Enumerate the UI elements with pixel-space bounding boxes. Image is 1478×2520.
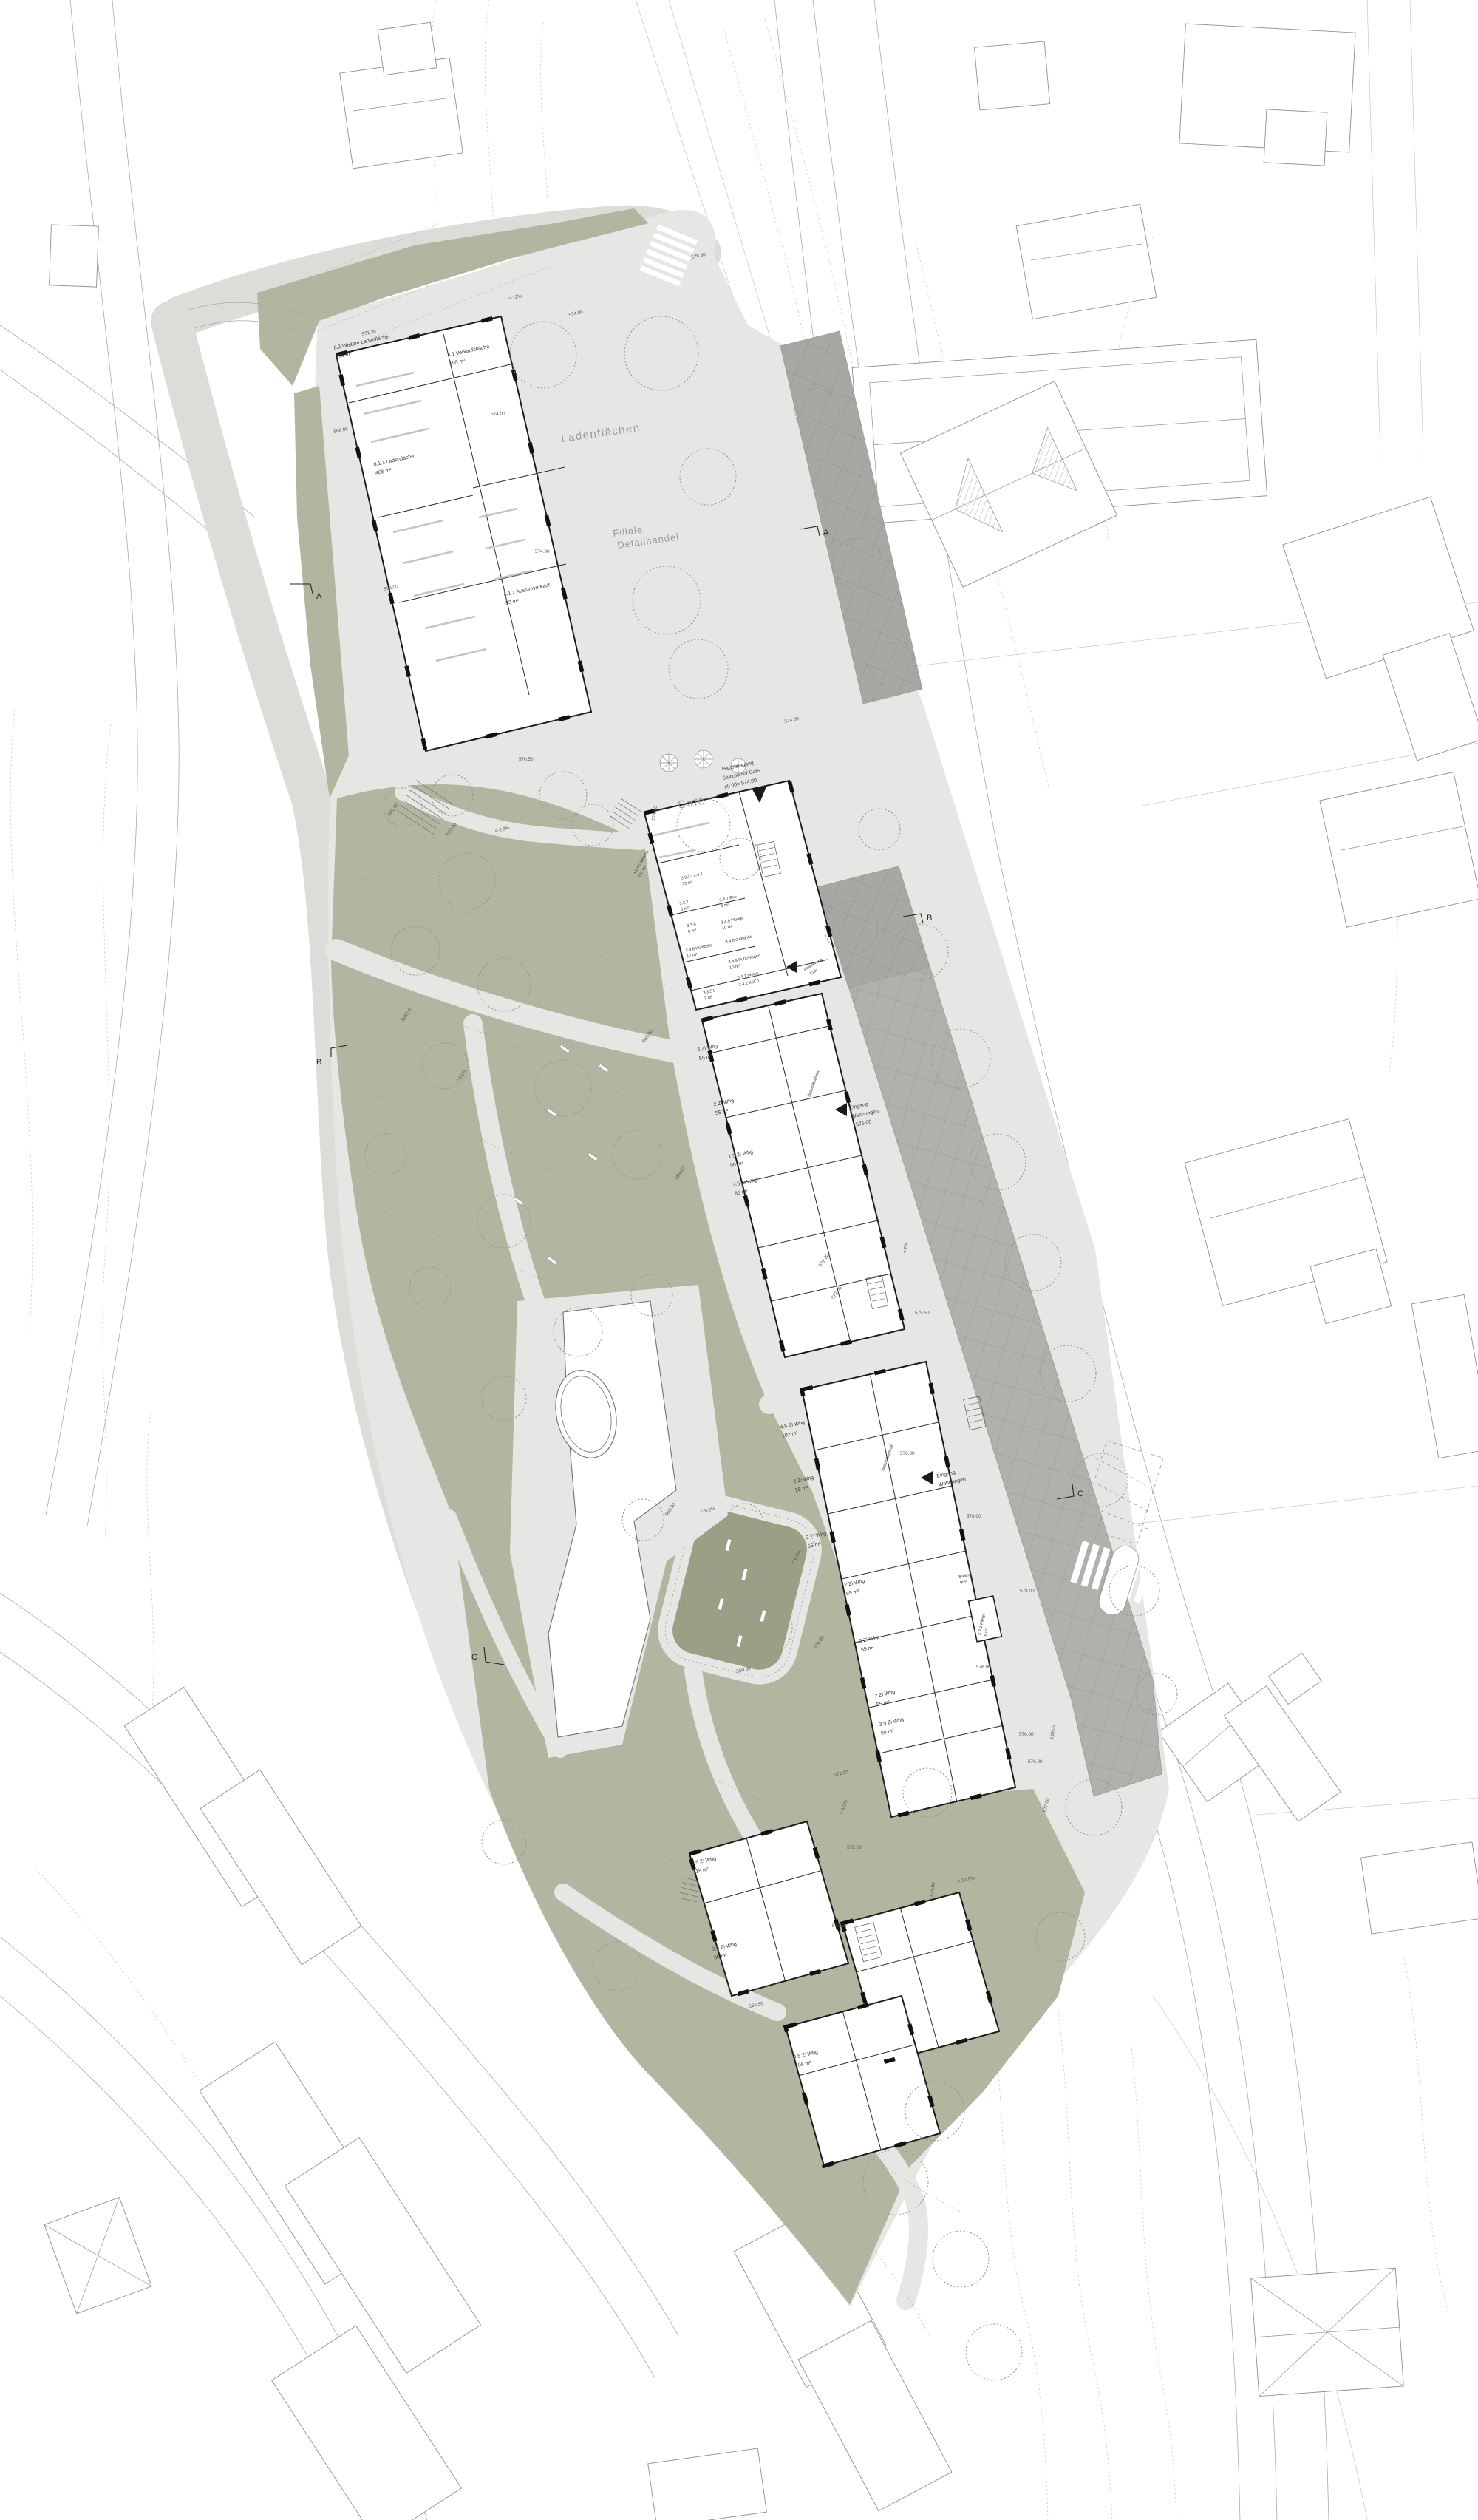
elev: 576.00: [967, 1514, 981, 1519]
svg-text:C: C: [471, 1653, 477, 1662]
svg-text:A: A: [823, 529, 829, 537]
elev: 578.00: [1020, 1589, 1035, 1594]
svg-text:C: C: [1077, 1490, 1083, 1498]
site-plan-drawing: Ladenflächen Filiale Detailhandel Cafe 6…: [0, 0, 1478, 2520]
elev: 576.00: [900, 1451, 915, 1456]
svg-text:A: A: [316, 592, 322, 601]
site-plan-canvas: Ladenflächen Filiale Detailhandel Cafe 6…: [0, 0, 1478, 2520]
elev: 572.00: [847, 1845, 862, 1850]
elev: 572.50: [832, 1923, 847, 1929]
elev: 574.00: [491, 412, 505, 417]
elev: 576.00: [1028, 1759, 1043, 1765]
elev: 574.00: [535, 549, 550, 554]
elev: 575.50: [915, 1311, 930, 1316]
elev: 570.50: [519, 757, 534, 762]
elev: 576.00: [976, 1665, 991, 1670]
svg-text:B: B: [316, 1058, 321, 1067]
svg-text:B: B: [927, 914, 932, 923]
elev: 576.00: [1019, 1732, 1034, 1737]
